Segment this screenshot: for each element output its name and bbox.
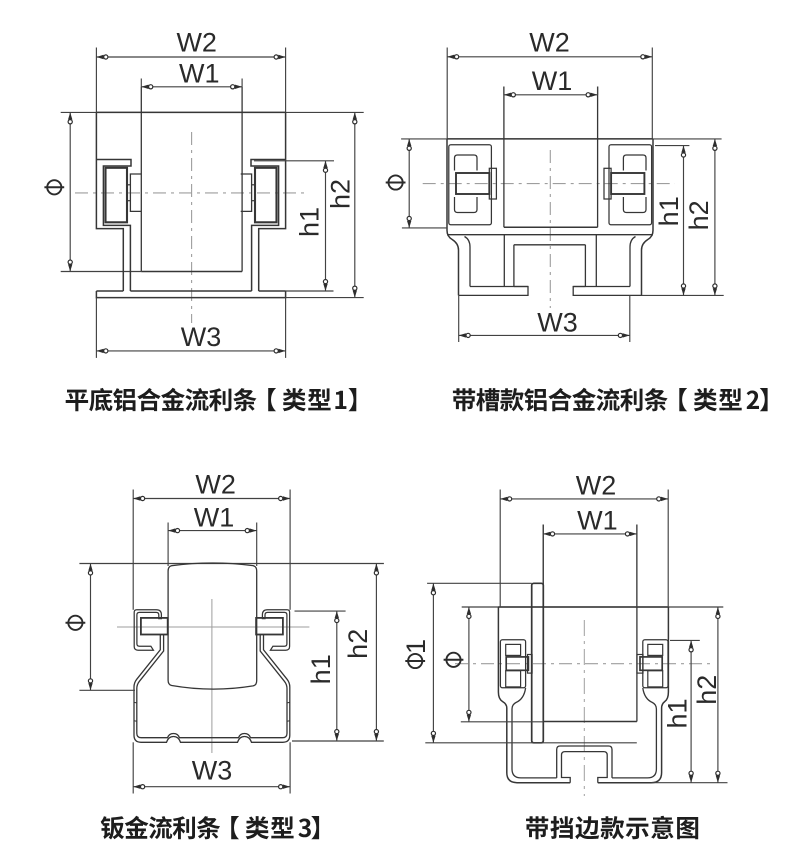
svg-text:h2: h2 xyxy=(343,629,373,659)
svg-text:W1: W1 xyxy=(532,66,573,96)
svg-text:W1: W1 xyxy=(179,58,220,88)
svg-text:W3: W3 xyxy=(192,756,233,786)
svg-text:W2: W2 xyxy=(529,28,570,58)
svg-text:W2: W2 xyxy=(195,470,236,500)
svg-text:W3: W3 xyxy=(537,308,578,338)
svg-text:h1: h1 xyxy=(654,196,684,226)
svg-text:W3: W3 xyxy=(181,322,222,352)
svg-text:W1: W1 xyxy=(577,506,618,536)
svg-text:W2: W2 xyxy=(176,28,217,58)
svg-text:W2: W2 xyxy=(576,471,617,501)
svg-text:h2: h2 xyxy=(326,179,356,209)
svg-text:h2: h2 xyxy=(692,675,722,705)
svg-text:1: 1 xyxy=(401,639,431,654)
svg-text:h1: h1 xyxy=(306,654,336,684)
svg-text:h1: h1 xyxy=(662,698,692,728)
svg-text:h1: h1 xyxy=(294,207,324,237)
svg-text:h2: h2 xyxy=(684,200,714,230)
svg-text:W1: W1 xyxy=(194,502,235,532)
